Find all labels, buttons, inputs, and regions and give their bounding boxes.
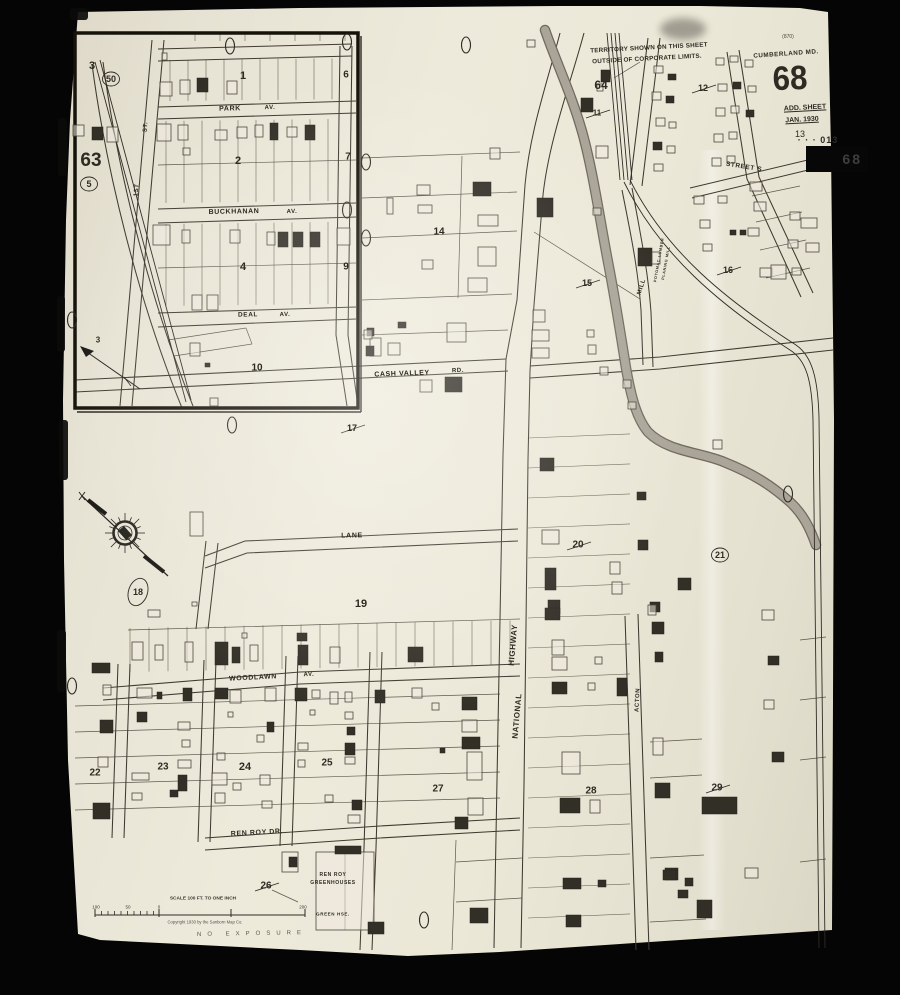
scan-background: 100500200PARKAV.BUCKHANANAV.DEALAV.ST.1S…: [0, 0, 900, 995]
sheet-number: 68: [772, 59, 808, 99]
no-exposure-note: NO EXPOSURE: [197, 930, 307, 938]
paper-edge-mark: [58, 118, 67, 176]
scale-label: SCALE 100 FT. TO ONE INCH: [170, 897, 236, 902]
addendum-line1: ADD. SHEET: [784, 103, 827, 112]
territory-note-line2: OUTSIDE OF CORPORATE LIMITS.: [592, 53, 702, 66]
copyright-line: Copyright 1930 by the Sanborn Map Co.: [168, 920, 243, 925]
paper-edge-mark: [59, 420, 68, 480]
static-annotations: TERRITORY SHOWN ON THIS SHEET OUTSIDE OF…: [0, 0, 900, 995]
city-label: CUMBERLAND MD.: [753, 48, 819, 60]
tiny-ref-number: (870): [782, 34, 794, 40]
paper-edge-mark: [57, 296, 65, 352]
addendum-line2: JAN. 1930: [785, 116, 819, 125]
paper-edge-mark: [70, 8, 88, 20]
tab-sheet-number: 68: [842, 151, 862, 167]
sheet-edge-tab: 68: [806, 146, 868, 172]
paper-edge-mark: [57, 630, 66, 692]
stamp-013: · · · 013: [798, 135, 839, 145]
